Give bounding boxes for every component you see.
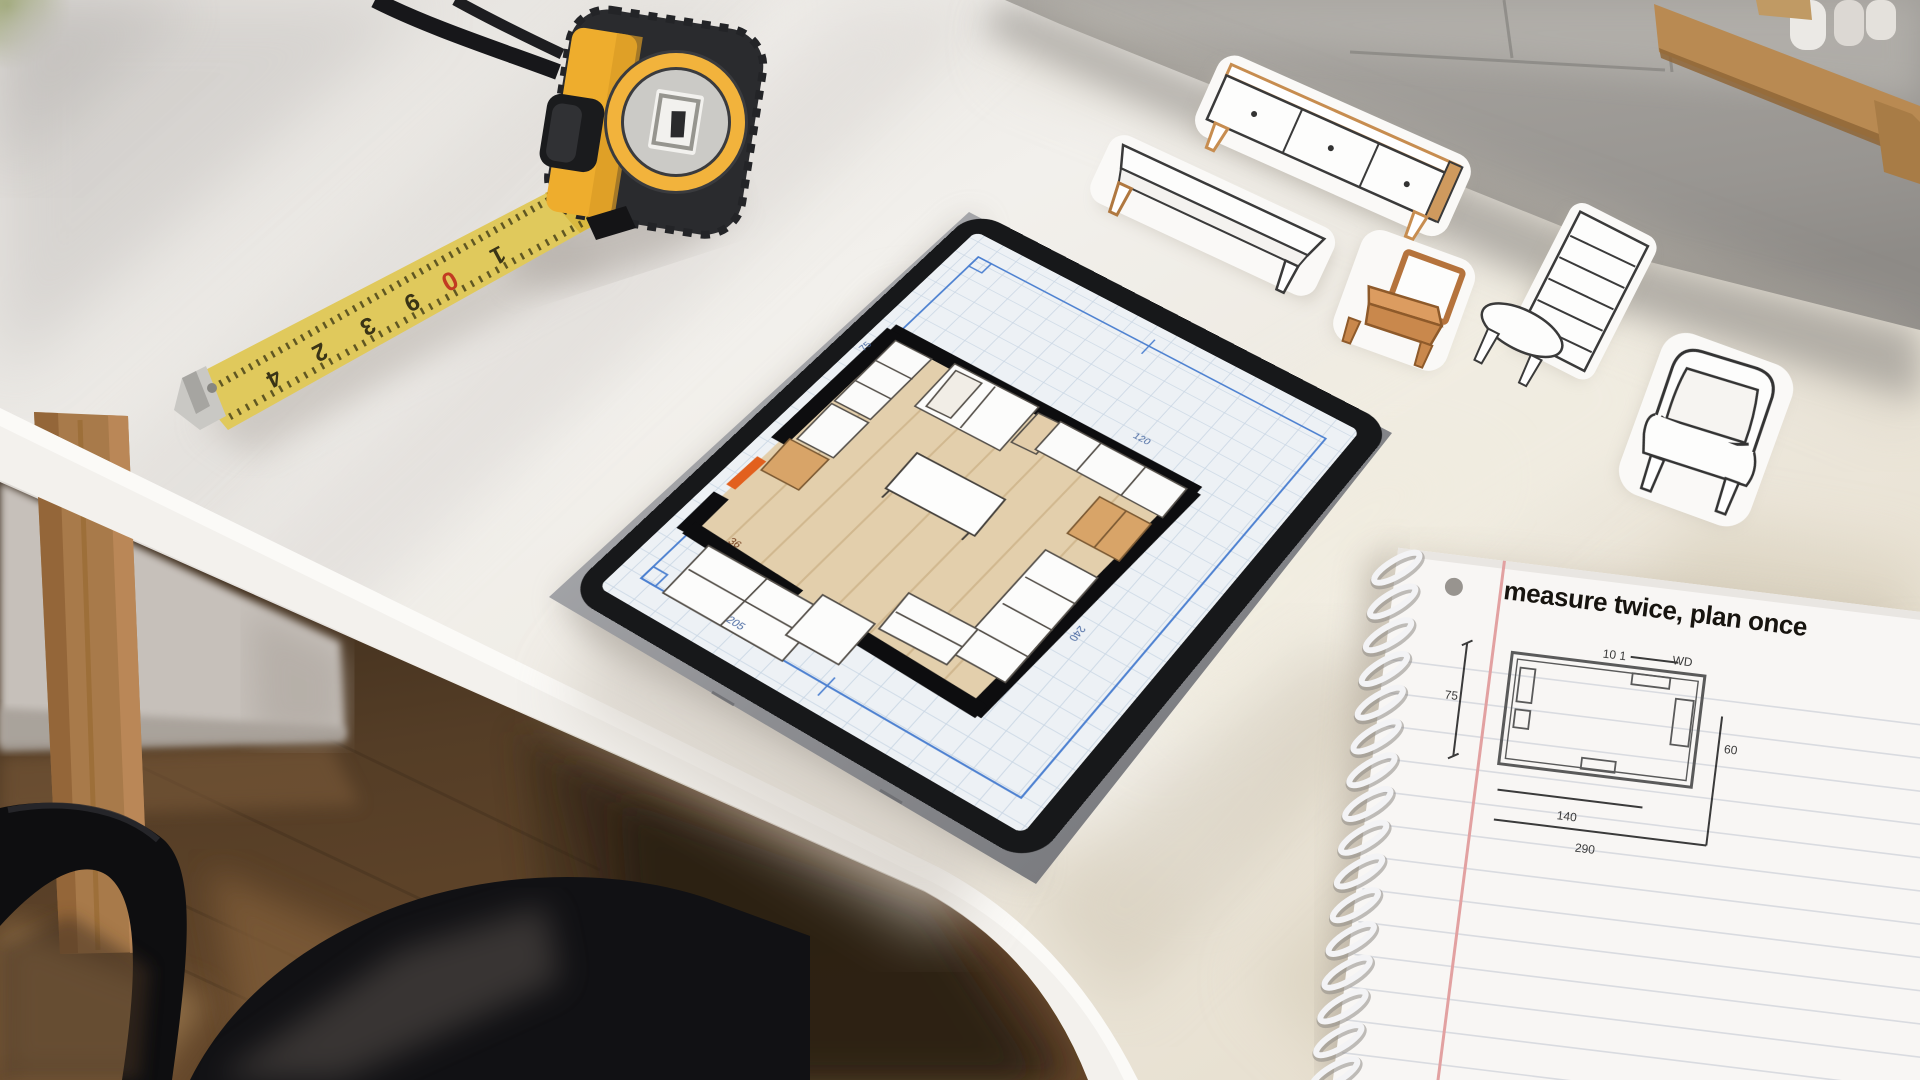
svg-text:10 1: 10 1 <box>1602 647 1627 664</box>
svg-text:75: 75 <box>1444 688 1459 704</box>
svg-text:60: 60 <box>1723 742 1738 758</box>
svg-text:WD: WD <box>1672 653 1694 669</box>
svg-text:290: 290 <box>1574 841 1596 857</box>
svg-text:140: 140 <box>1556 808 1578 824</box>
